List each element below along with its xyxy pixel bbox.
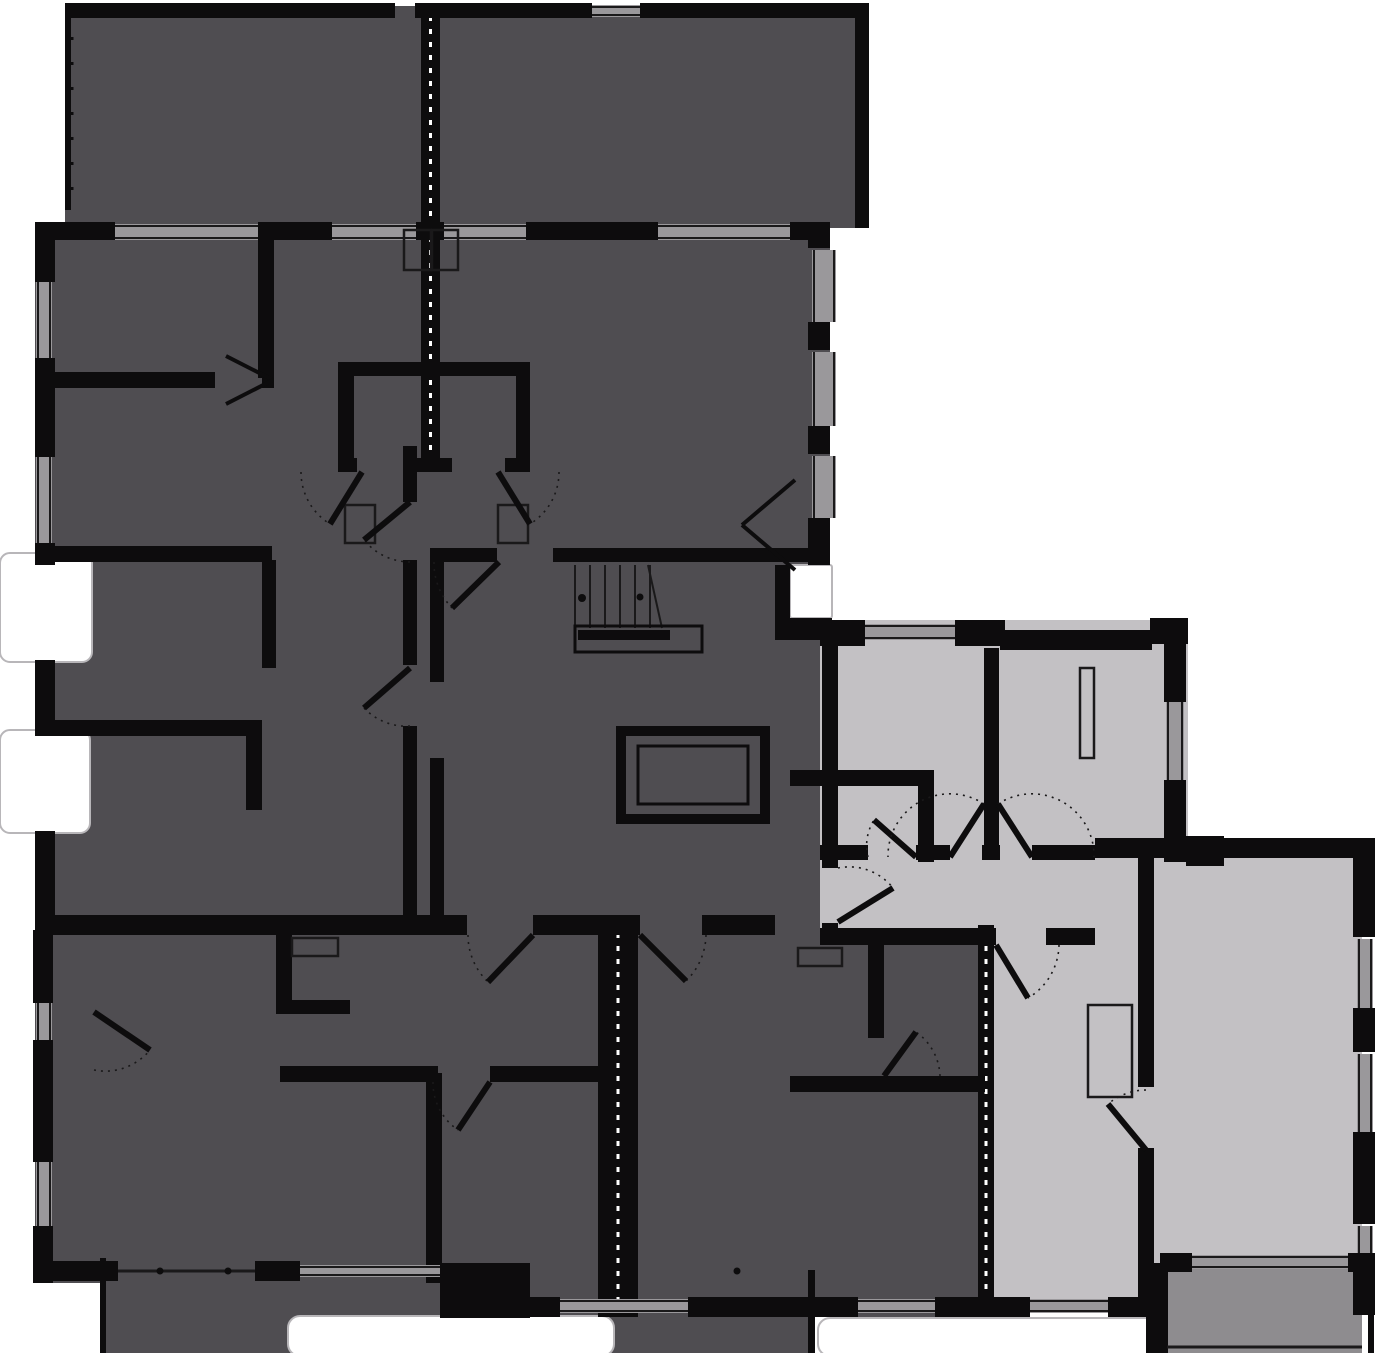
elevator-cab: [626, 736, 760, 814]
wall-segment: [1138, 858, 1154, 906]
wall-segment: [790, 770, 930, 786]
wall-segment: [533, 915, 640, 935]
wall-segment: [338, 362, 530, 376]
wall-segment: [33, 930, 53, 1003]
plan-dot: [734, 1268, 741, 1275]
wall-segment: [516, 362, 530, 472]
wall-segment: [702, 915, 775, 935]
terrace-inset-left: [288, 1316, 614, 1353]
wall-segment: [246, 720, 262, 810]
wall-segment: [688, 1297, 858, 1317]
wall-segment: [415, 3, 592, 18]
terrace-unit2: [1160, 1267, 1362, 1353]
wall-segment: [553, 548, 830, 562]
wall-segment: [1353, 1270, 1375, 1315]
wall-segment: [403, 726, 417, 917]
wall-segment: [276, 1000, 350, 1014]
stair-rail-bar: [578, 630, 670, 640]
wall-segment: [1108, 1297, 1160, 1317]
wall-segment: [403, 560, 417, 665]
wall-segment: [808, 426, 830, 454]
terrace-top: [65, 6, 868, 228]
notch-left-upper: [0, 553, 92, 662]
wall-segment: [1368, 1315, 1374, 1353]
wall-segment: [1164, 640, 1186, 702]
wall-segment: [775, 565, 790, 620]
notch-left-lower: [0, 730, 90, 833]
wall-segment: [982, 845, 1000, 860]
floor-plan: [0, 0, 1381, 1353]
wall-segment: [1095, 838, 1362, 858]
floor-plan-canvas: [0, 0, 1381, 1353]
wall-segment: [338, 362, 354, 472]
wall-segment: [65, 3, 71, 210]
wall-segment: [868, 930, 884, 1038]
wall-segment: [430, 758, 444, 915]
wall-segment: [855, 3, 869, 228]
wall-segment: [33, 1040, 53, 1162]
wall-segment: [490, 1066, 612, 1082]
wall-segment: [440, 1263, 530, 1318]
wall-segment: [1353, 1008, 1375, 1052]
wall-segment: [65, 3, 395, 18]
wall-segment: [35, 546, 272, 562]
wall-segment: [808, 322, 830, 350]
wall-segment: [35, 720, 262, 736]
wall-segment: [808, 222, 830, 248]
unit-bottom-left: [35, 930, 612, 1283]
wall-segment: [935, 1297, 1030, 1317]
terrace-inset-right: [818, 1318, 1160, 1353]
wall-segment: [430, 562, 444, 682]
unit2-rooms-top: [820, 620, 1188, 862]
wall-segment: [1000, 630, 1152, 650]
wall-segment: [403, 446, 417, 502]
plan-dot: [637, 594, 644, 601]
unit-bottom-middle: [612, 930, 985, 1317]
wall-segment: [426, 1073, 442, 1283]
wall-segment: [338, 458, 357, 472]
wall-segment: [505, 458, 530, 472]
wall-segment: [35, 915, 467, 935]
window-right-upper-2: [812, 352, 836, 426]
wall-segment: [822, 640, 838, 868]
plan-dot: [225, 1268, 232, 1275]
wall-segment: [1353, 1132, 1375, 1224]
wall-segment: [790, 1076, 985, 1092]
wall-segment: [984, 648, 999, 845]
wall-segment: [526, 222, 658, 240]
wall-segment: [808, 1270, 815, 1353]
wall-segment: [430, 548, 497, 562]
wall-segment: [262, 560, 276, 668]
wall-segment: [820, 928, 996, 945]
wall-segment: [408, 458, 452, 472]
stair-newel-dot: [578, 594, 586, 602]
wall-segment: [100, 1258, 106, 1353]
unit2-bedroom: [985, 940, 1150, 1300]
notch-core-right: [790, 565, 832, 618]
plan-dot: [157, 1268, 164, 1275]
wall-segment: [530, 1297, 560, 1317]
wall-segment: [955, 620, 1005, 646]
window-right-upper-1: [812, 250, 836, 322]
wall-segment: [35, 372, 215, 388]
wall-segment: [1138, 905, 1154, 1087]
wall-segment: [258, 222, 274, 378]
wall-segment: [1046, 928, 1095, 945]
wall-segment: [280, 1066, 438, 1082]
wall-segment: [255, 1261, 300, 1281]
wall-segment: [1353, 1253, 1375, 1270]
window-right-upper-3: [812, 456, 836, 518]
wall-segment: [35, 222, 55, 282]
wall-segment: [916, 845, 950, 860]
wall-segment: [1032, 845, 1095, 860]
wall-segment: [640, 3, 855, 18]
wall-segment: [1353, 838, 1375, 937]
